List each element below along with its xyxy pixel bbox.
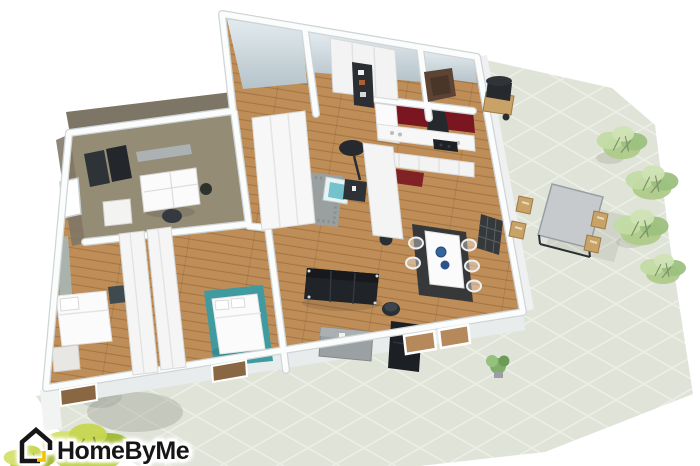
floorplan-svg: HomeByMe	[0, 0, 700, 466]
outdoor-chair	[591, 211, 608, 229]
entry	[424, 68, 456, 102]
dining-chair	[409, 238, 423, 249]
dining-chair	[467, 281, 481, 292]
bathroom-plant	[200, 183, 212, 195]
outdoor-chair	[584, 235, 601, 253]
sliding-door-closet	[252, 111, 315, 230]
floor-lamp	[339, 140, 365, 156]
dining-chair	[406, 258, 420, 269]
lattice-window	[477, 214, 503, 255]
dining-chair	[462, 240, 476, 251]
floorplan-render: HomeByMe	[0, 0, 700, 466]
glass-door	[404, 331, 436, 354]
pillow	[215, 300, 229, 310]
outdoor-chair	[516, 196, 533, 214]
dresser	[52, 345, 80, 372]
homebyme-wordmark: HomeByMe	[57, 437, 190, 465]
bowl	[441, 261, 450, 270]
pillow	[60, 297, 79, 311]
bowl	[436, 247, 446, 257]
dining-chair	[465, 261, 479, 272]
dining-table	[425, 231, 464, 288]
pillow	[231, 298, 245, 308]
glass-door	[439, 325, 470, 348]
outdoor-chair	[509, 221, 526, 239]
stool	[162, 209, 182, 223]
washer	[103, 199, 132, 226]
